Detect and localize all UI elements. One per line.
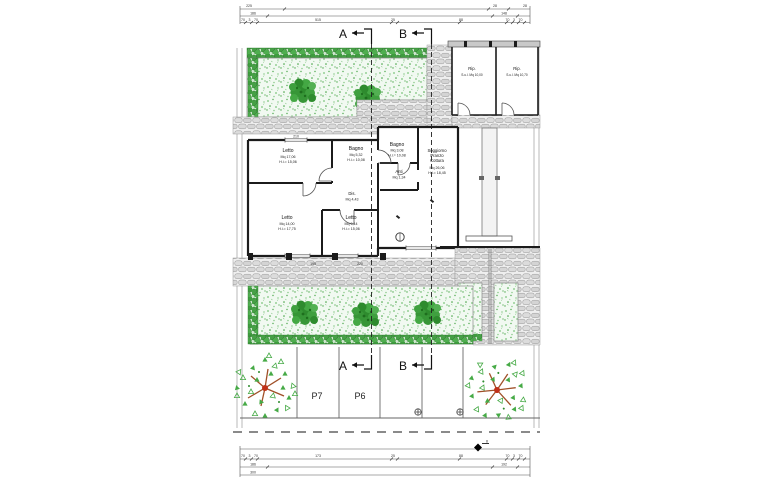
dim-top: 28 — [523, 4, 527, 8]
room-label-rip1: Rip. — [468, 66, 475, 71]
room-area-letto2: Mq 14,00 — [280, 222, 295, 226]
dim-top: 225 — [246, 4, 252, 8]
storage-rooms: Rip. S.u.l. Mq 10,00 Rip. S.u.l. Mq 10,7… — [448, 41, 540, 115]
room-label-bagno2: Bagno — [390, 142, 405, 148]
right-shaft — [466, 128, 512, 241]
dim-bottom: 186 — [250, 463, 256, 467]
room-label-letto2: Letto — [281, 215, 292, 221]
dim-top: 70 — [241, 18, 245, 22]
dim-bottom: 70 — [519, 454, 523, 458]
room-area-letto1: Mq 17,06 — [281, 155, 296, 159]
section-label-a-bottom: A — [339, 359, 347, 373]
section-label-b-bottom: B — [399, 359, 407, 373]
dim-bottom: 88 — [459, 454, 463, 458]
dim-bottom: 70 — [241, 454, 245, 458]
room-label-bagno1: Bagno — [349, 146, 364, 152]
dim-top: 186 — [250, 12, 256, 16]
room-area-bagno1: Mq 5,32 — [350, 153, 363, 157]
room-area-letto3: Mq 9,14 — [345, 222, 358, 226]
dim-bottom: 3 — [249, 454, 251, 458]
hedge-row-bottom — [250, 335, 473, 344]
section-label-b-top: B — [399, 27, 407, 41]
room-area-dis: Mq 4,43 — [346, 198, 359, 202]
bottom-dimension-lines: 8 70 3 70 173 25 88 70 3 70 186 192 300 — [233, 432, 540, 477]
hedge-strip-left-top — [248, 58, 258, 117]
parking-label-p6: P6 — [354, 391, 365, 401]
pillar — [380, 253, 386, 260]
room-height-letto3: H.i.= 15,06 — [342, 227, 359, 231]
dim-pillar-1: 195 — [310, 262, 316, 266]
pillar — [248, 253, 253, 260]
floor-plan-page: 225 28 28 186 148 70 3 70 515 25 88 70 3… — [0, 0, 764, 492]
room-label-soggiorno3: Cottura — [430, 158, 444, 163]
dim-bottom: 3 — [513, 454, 515, 458]
benchmark-value: 8 — [486, 440, 488, 444]
room-label-letto1: Letto — [282, 148, 293, 154]
dim-top: 88 — [459, 18, 463, 22]
parking-area: P7 P6 — [234, 345, 542, 431]
room-height-bagno1: H.i.= 10,08 — [347, 158, 364, 162]
room-label-letto3: Letto — [345, 215, 356, 221]
room-height-letto1: H.i.= 15,06 — [279, 160, 296, 164]
room-area-bagno2: Mq 3,08 — [391, 149, 404, 153]
dim-bottom: 25 — [391, 454, 395, 458]
dim-top: 148 — [501, 12, 507, 16]
dim-window: 210 — [293, 135, 299, 139]
dim-top: 3 — [513, 18, 515, 22]
room-area-anti: Mq 1,34 — [393, 176, 406, 180]
middle-garden — [248, 286, 473, 344]
room-label-rip2: Rip. — [513, 66, 520, 71]
room-label-dis: Dis. — [348, 191, 355, 196]
retaining-wall-top — [448, 41, 540, 47]
dim-bottom: 173 — [315, 454, 321, 458]
floor-plan-drawing: 225 28 28 186 148 70 3 70 515 25 88 70 3… — [0, 0, 764, 492]
parking-label-p7: P7 — [311, 391, 322, 401]
dim-bottom: 300 — [250, 471, 256, 475]
dim-bottom: 70 — [506, 454, 510, 458]
dim-bottom: 192 — [501, 463, 507, 467]
benchmark-symbol: 8 — [474, 440, 489, 452]
grass-strip-right-2 — [494, 283, 518, 341]
dim-top: 70 — [506, 18, 510, 22]
tree — [234, 353, 298, 418]
pillar — [286, 253, 292, 260]
room-height-bagno2: H.i.= 10,08 — [388, 154, 405, 158]
dim-top: 515 — [315, 18, 321, 22]
room-height-soggiorno: H.i.= 18,45 — [428, 171, 445, 175]
room-height-letto2: H.i.= 17,75 — [278, 227, 295, 231]
room-label-anti: Anti — [395, 169, 402, 174]
dim-top: 25 — [391, 18, 395, 22]
pillar — [332, 253, 338, 260]
room-area-rip2: S.u.l. Mq 10,70 — [506, 73, 528, 77]
apartment-plan: 210 Letto Mq 17,06 H.i.= 15,06 Bagno Mq … — [248, 127, 458, 259]
dim-top: 70 — [254, 18, 258, 22]
section-label-a-top: A — [339, 27, 347, 41]
top-dimension-lines: 225 28 28 186 148 70 3 70 515 25 88 70 3… — [240, 4, 530, 24]
room-area-rip1: S.u.l. Mq 10,00 — [461, 73, 483, 77]
dim-top: 3 — [249, 18, 251, 22]
dim-top: 28 — [493, 4, 497, 8]
hedge-row-top — [247, 48, 427, 58]
dim-bottom: 70 — [254, 454, 258, 458]
dim-pillar-2: 220 — [357, 262, 363, 266]
dim-top: 70 — [519, 18, 523, 22]
